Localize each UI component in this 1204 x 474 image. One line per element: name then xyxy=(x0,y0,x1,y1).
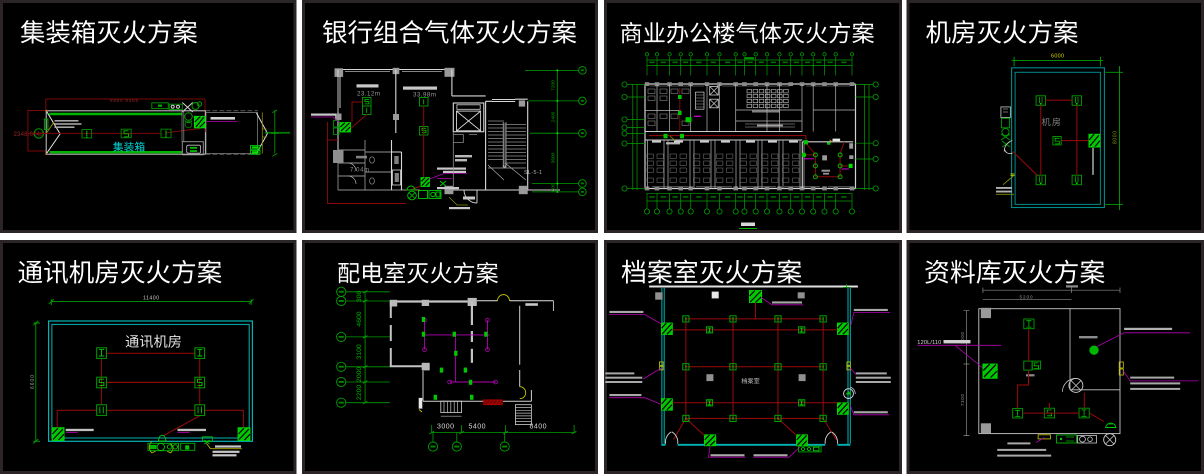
svg-text:3600: 3600 xyxy=(551,152,557,163)
svg-text:300: 300 xyxy=(356,291,363,303)
svg-text:3100: 3100 xyxy=(356,344,363,359)
svg-text:8860.9356: 8860.9356 xyxy=(110,98,138,103)
svg-text:2200: 2200 xyxy=(356,385,363,400)
svg-text:23.12m: 23.12m xyxy=(357,91,380,98)
svg-text:SL-5-1: SL-5-1 xyxy=(524,170,542,176)
svg-text:5200: 5200 xyxy=(1020,295,1033,300)
svg-text:7.04m: 7.04m xyxy=(350,168,369,174)
svg-text:11400: 11400 xyxy=(143,296,159,302)
svg-text:8400: 8400 xyxy=(530,424,547,431)
svg-text:4600: 4600 xyxy=(356,311,363,326)
svg-text:7200: 7200 xyxy=(551,80,557,91)
svg-text:2400: 2400 xyxy=(551,111,557,122)
svg-text:600: 600 xyxy=(551,183,557,191)
svg-text:3000: 3000 xyxy=(437,424,454,431)
svg-text:2000: 2000 xyxy=(356,367,363,382)
svg-text:8000: 8000 xyxy=(1113,131,1119,144)
svg-text:7300: 7300 xyxy=(960,393,965,406)
svg-text:5400: 5400 xyxy=(469,424,486,431)
svg-text:6000: 6000 xyxy=(1051,54,1064,60)
svg-text:6600: 6600 xyxy=(30,375,36,389)
